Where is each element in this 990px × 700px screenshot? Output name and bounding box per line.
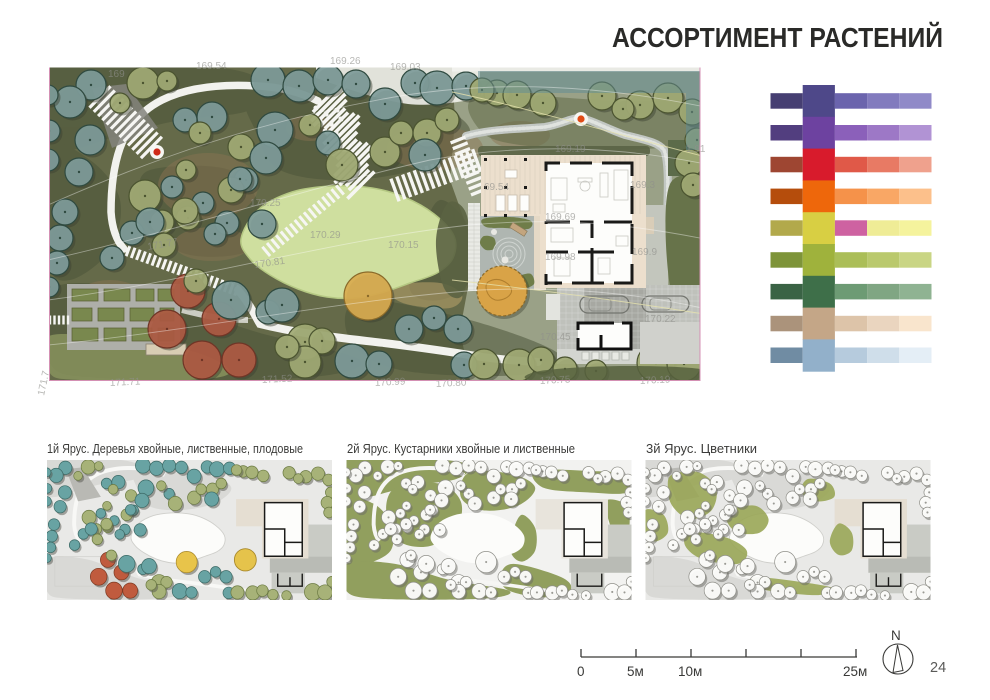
svg-text:170.99: 170.99 xyxy=(375,376,407,389)
svg-text:170.22: 170.22 xyxy=(645,314,676,325)
svg-text:171.52: 171.52 xyxy=(262,373,294,386)
svg-text:169.9: 169.9 xyxy=(632,247,657,258)
svg-text:5м: 5м xyxy=(627,664,644,679)
svg-text:170.45: 170.45 xyxy=(540,332,571,343)
svg-text:1й Ярус. Деревья хвойные, лист: 1й Ярус. Деревья хвойные, лиственные, пл… xyxy=(47,442,303,456)
svg-text:2й Ярус. Кустарники хвойные и: 2й Ярус. Кустарники хвойные и лиственные xyxy=(347,442,575,456)
svg-text:171.71: 171.71 xyxy=(110,376,142,389)
svg-text:169.3: 169.3 xyxy=(630,180,655,191)
svg-text:170.15: 170.15 xyxy=(388,240,419,251)
svg-text:169: 169 xyxy=(108,69,125,80)
svg-text:169.69: 169.69 xyxy=(545,212,576,223)
svg-text:24: 24 xyxy=(930,660,946,676)
svg-text:169.98: 169.98 xyxy=(545,252,576,263)
svg-text:69.54: 69.54 xyxy=(484,182,509,193)
svg-text:170.25: 170.25 xyxy=(250,198,281,209)
svg-text:1.91: 1.91 xyxy=(686,144,706,155)
svg-text:169.26: 169.26 xyxy=(330,56,361,67)
svg-text:0: 0 xyxy=(577,664,585,679)
svg-text:170.80: 170.80 xyxy=(436,377,468,390)
svg-text:169.54: 169.54 xyxy=(196,61,227,72)
svg-text:10м: 10м xyxy=(678,664,702,679)
svg-text:25м: 25м xyxy=(843,664,867,679)
svg-text:N: N xyxy=(891,628,901,643)
svg-text:169.19: 169.19 xyxy=(555,144,586,155)
svg-text:3й Ярус. Цветники: 3й Ярус. Цветники xyxy=(646,442,757,456)
svg-text:169.03: 169.03 xyxy=(390,62,421,73)
svg-text:АССОРТИМЕНТ РАСТЕНИЙ: АССОРТИМЕНТ РАСТЕНИЙ xyxy=(612,21,943,53)
svg-text:170.29: 170.29 xyxy=(310,230,341,241)
